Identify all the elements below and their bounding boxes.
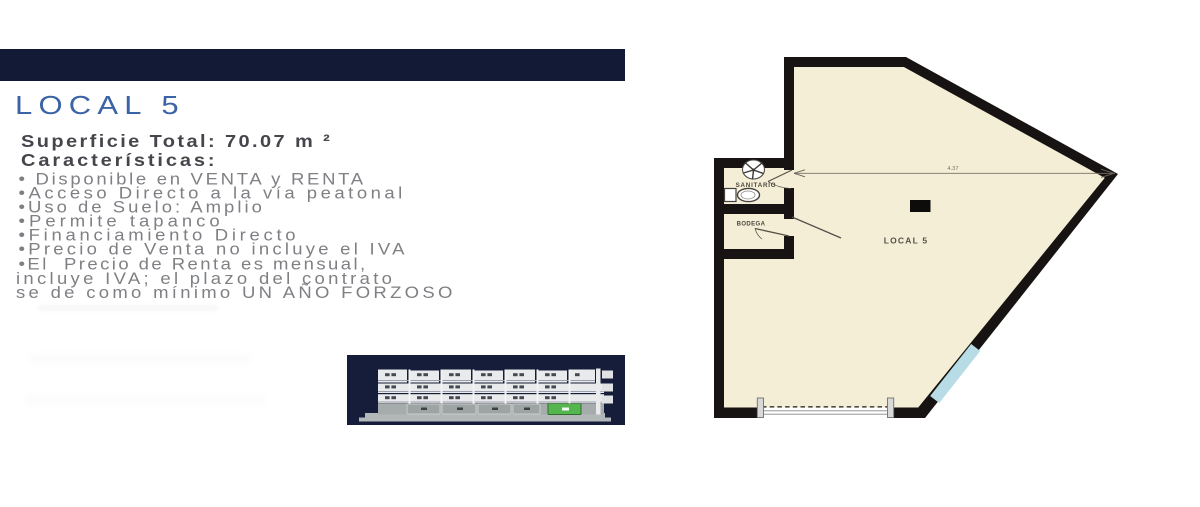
svg-text:BODEGA: BODEGA xyxy=(737,222,766,228)
svg-text:4.37: 4.37 xyxy=(947,166,958,172)
svg-text:SANITARIO: SANITARIO xyxy=(736,182,777,189)
svg-text:LOCAL 5: LOCAL 5 xyxy=(884,236,929,246)
